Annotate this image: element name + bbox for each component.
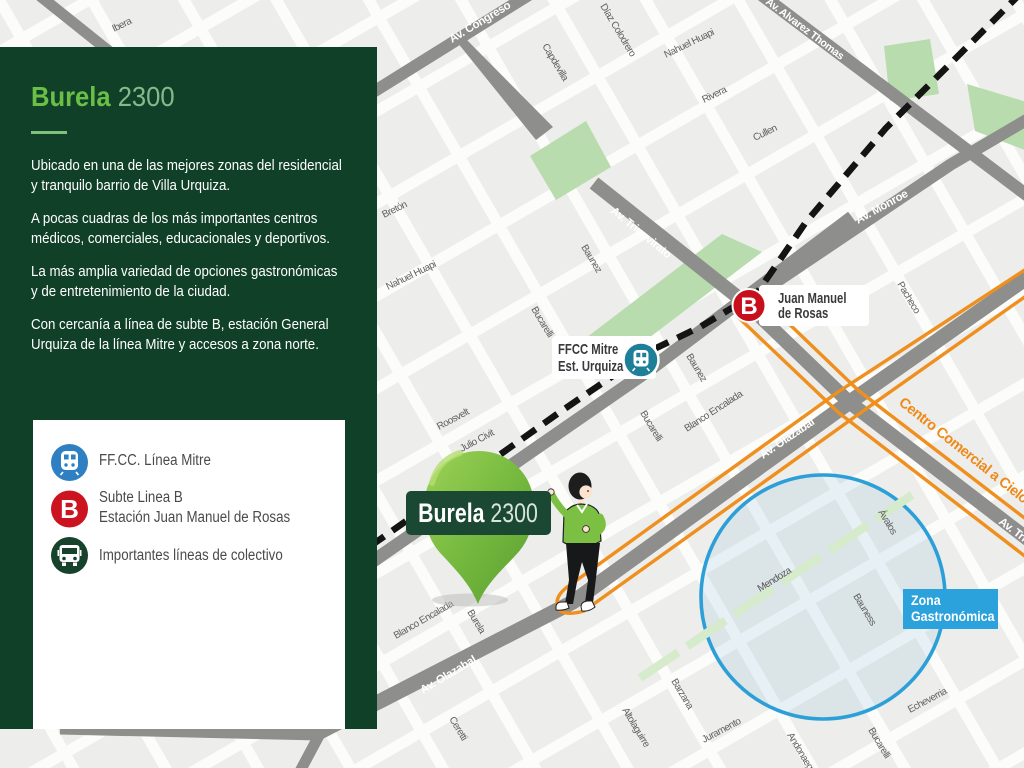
svg-text:FFCC Mitre: FFCC Mitre: [558, 341, 618, 358]
svg-text:B: B: [60, 494, 79, 524]
svg-text:de Rosas: de Rosas: [778, 305, 828, 322]
svg-text:B: B: [740, 293, 757, 320]
svg-text:Gastronómica: Gastronómica: [911, 609, 995, 625]
svg-text:Est. Urquiza: Est. Urquiza: [558, 358, 624, 375]
svg-text:Zona: Zona: [911, 593, 941, 609]
svg-text:Burela 2300: Burela 2300: [418, 499, 538, 529]
